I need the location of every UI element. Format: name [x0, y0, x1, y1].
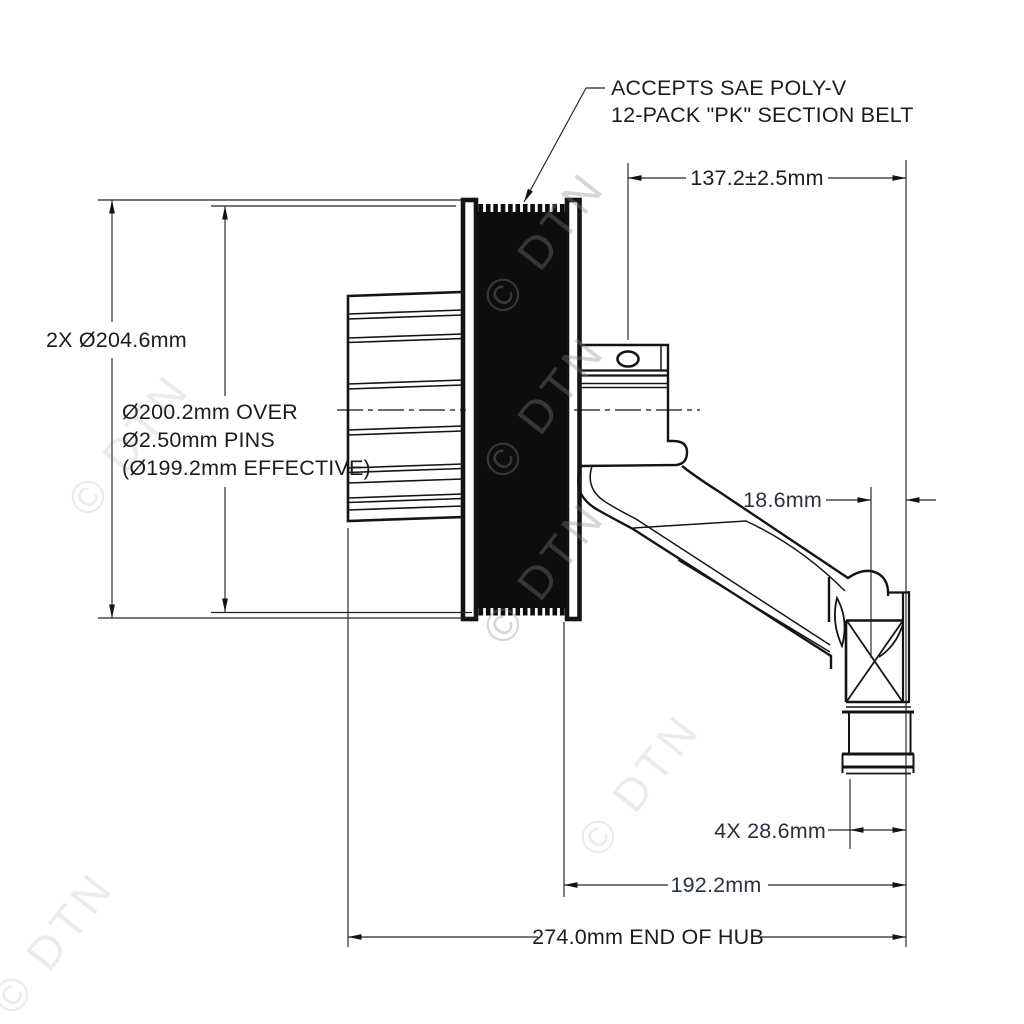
dim-bolt-depth: 4X 28.6mm: [714, 819, 906, 843]
dim-hub-length-label: 192.2mm: [670, 873, 761, 897]
dim-overall-length: 274.0mm END OF HUB: [348, 925, 906, 949]
engineering-drawing-page: 137.2±2.5mm 2X Ø204.6mm Ø200.2mm OVER Ø2…: [0, 0, 1024, 1024]
dim-outer-diameter-label: 2X Ø204.6mm: [46, 328, 187, 352]
dim-bolt-depth-label: 4X 28.6mm: [714, 819, 826, 843]
watermark-text: © DTN: [567, 703, 710, 866]
part-outline: [348, 200, 914, 774]
left-flange: [463, 200, 476, 619]
watermark-text: © DTN: [0, 861, 124, 1024]
dim-hub-offset-label: 18.6mm: [743, 488, 822, 512]
dim-over-pins-label-3: (Ø199.2mm EFFECTIVE): [122, 456, 371, 480]
dim-hub-offset: 18.6mm: [743, 488, 936, 512]
belt-note-line2: 12-PACK "PK" SECTION BELT: [611, 103, 914, 127]
dim-top-width: 137.2±2.5mm: [628, 166, 906, 190]
clutch-body: [348, 292, 463, 521]
bracket-arm: [578, 466, 888, 669]
dim-hub-length: 192.2mm: [564, 873, 906, 897]
dim-top-width-label: 137.2±2.5mm: [690, 166, 824, 190]
watermark-layer: © DTN © DTN © DTN © DTN © DTN © DTN: [0, 161, 710, 1024]
belt-note-line1: ACCEPTS SAE POLY-V: [611, 76, 847, 100]
fan-clutch-pulley-drawing: 137.2±2.5mm 2X Ø204.6mm Ø200.2mm OVER Ø2…: [0, 0, 1024, 1024]
dim-overall-length-label: 274.0mm END OF HUB: [532, 925, 764, 949]
mount-hole: [618, 352, 639, 367]
